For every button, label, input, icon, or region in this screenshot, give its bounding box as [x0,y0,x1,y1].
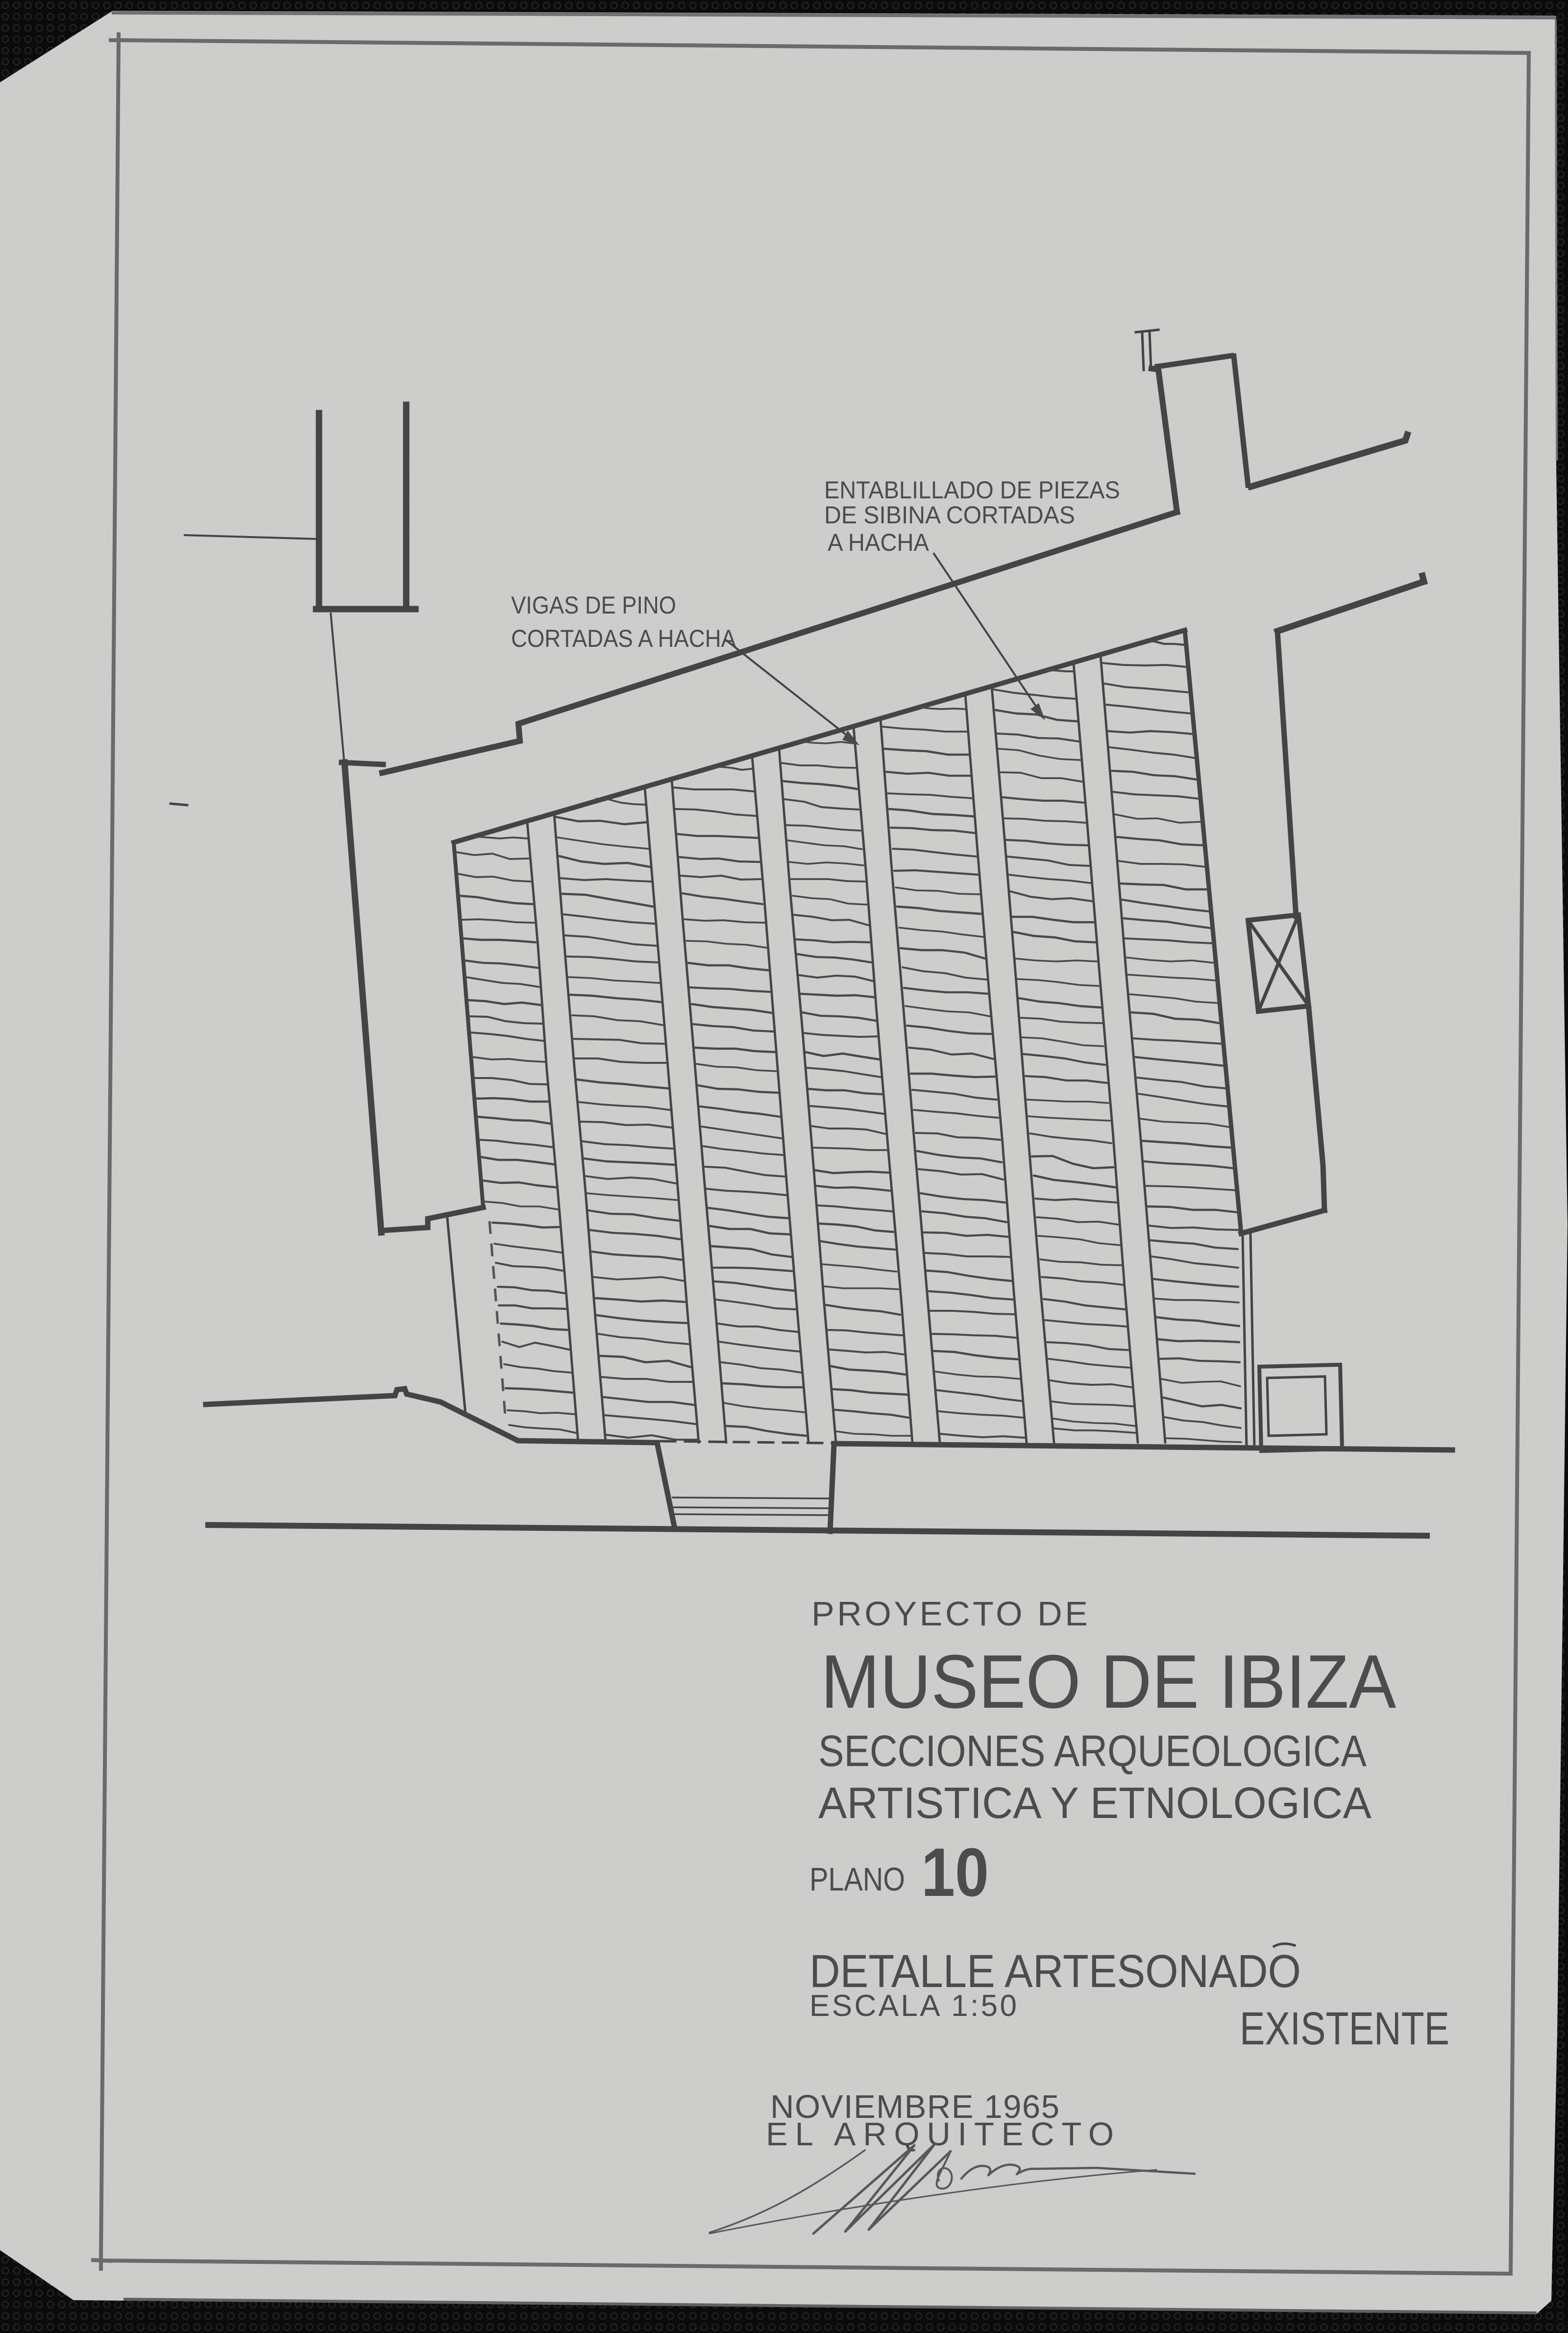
svg-text:PROYECTO DE: PROYECTO DE [811,1595,1088,1633]
svg-text:PLANO: PLANO [809,1861,905,1898]
svg-text:EXISTENTE: EXISTENTE [1240,2003,1449,2054]
svg-text:A HACHA: A HACHA [828,529,929,557]
svg-text:10: 10 [921,1834,989,1911]
svg-text:DE SIBINA CORTADAS: DE SIBINA CORTADAS [824,502,1075,529]
svg-text:ESCALA 1:50: ESCALA 1:50 [809,1989,1017,2023]
svg-text:VIGAS DE PINO: VIGAS DE PINO [511,592,676,619]
svg-text:ENTABLILLADO DE PIEZAS: ENTABLILLADO DE PIEZAS [824,477,1120,504]
svg-text:MUSEO DE IBIZA: MUSEO DE IBIZA [821,1639,1396,1724]
svg-text:ARTISTICA Y ETNOLOGICA: ARTISTICA Y ETNOLOGICA [818,1778,1372,1827]
svg-text:SECCIONES ARQUEOLOGICA: SECCIONES ARQUEOLOGICA [818,1726,1367,1775]
svg-text:CORTADAS A HACHA: CORTADAS A HACHA [511,625,736,652]
